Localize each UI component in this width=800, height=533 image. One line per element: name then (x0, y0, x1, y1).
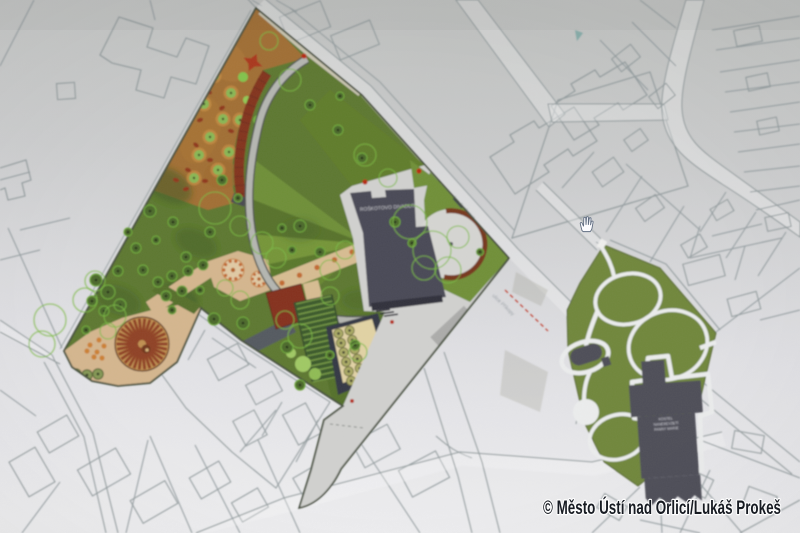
svg-text:© Město Ústí nad Orlicí/Lukáš: © Město Ústí nad Orlicí/Lukáš Prokeš (543, 497, 781, 519)
